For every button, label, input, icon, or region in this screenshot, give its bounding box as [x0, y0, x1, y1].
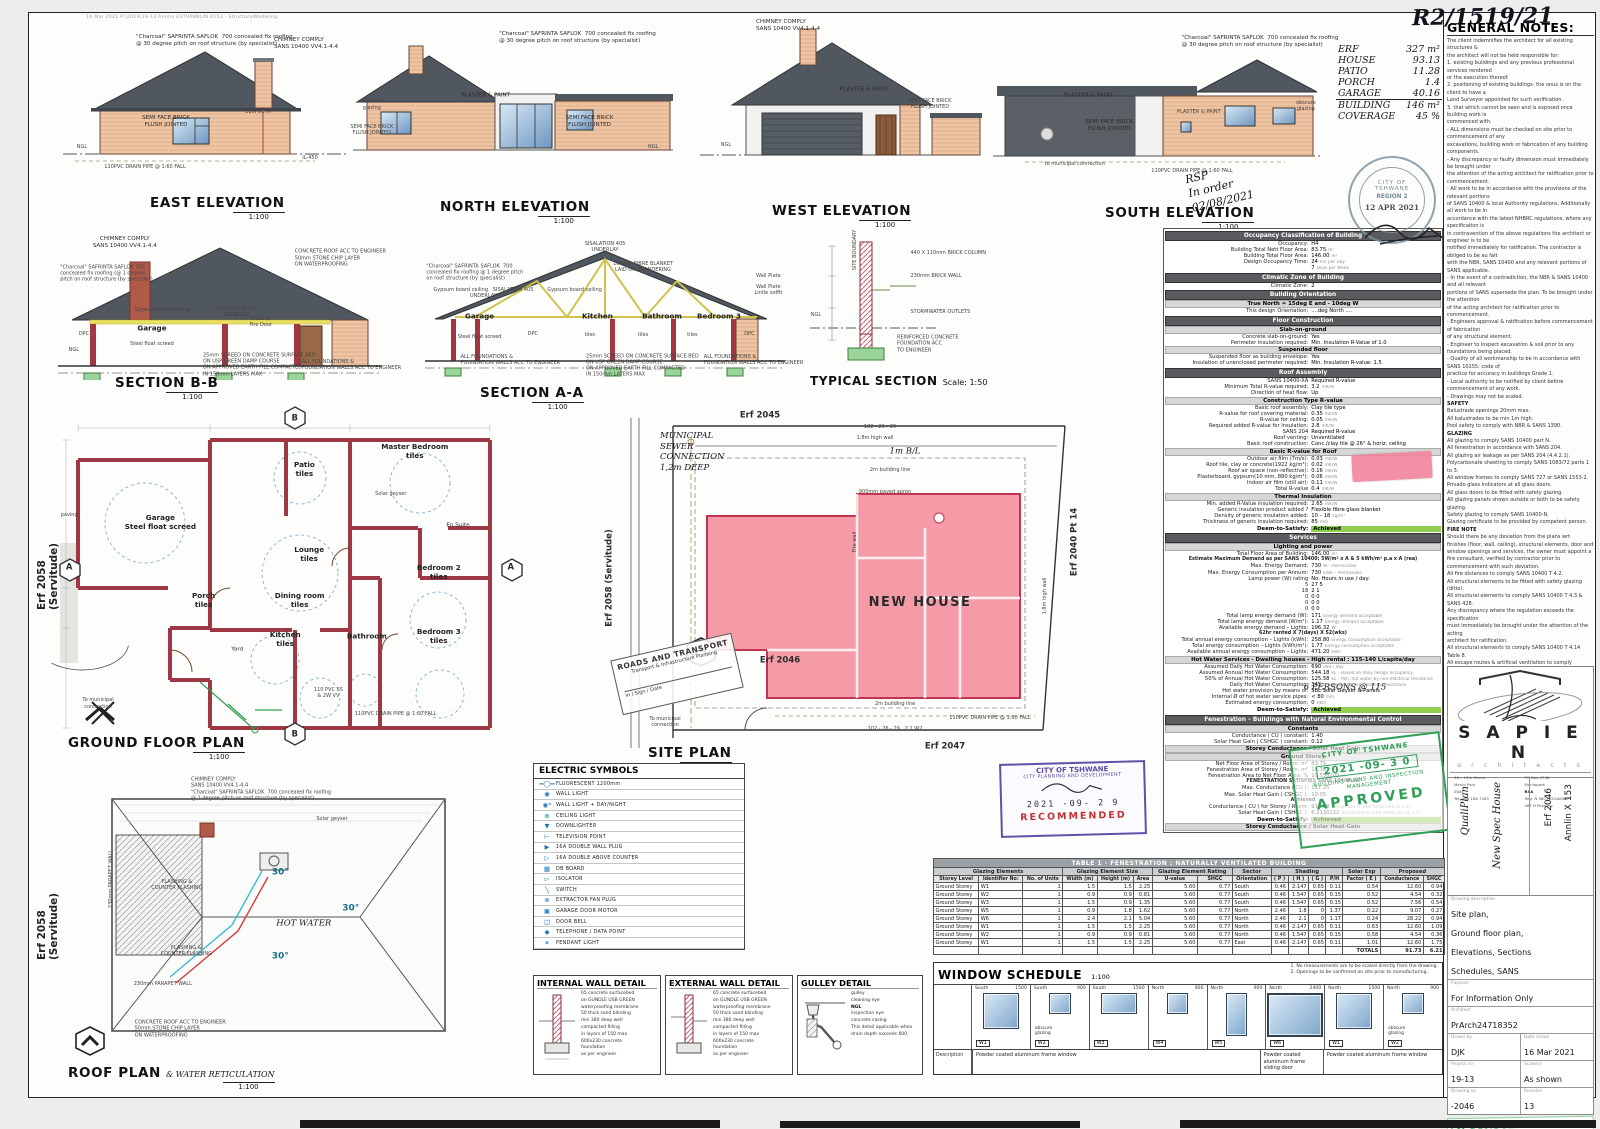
- roof-plan-hand-note: & WATER RETICULATION: [166, 1070, 275, 1079]
- table-cell: Ground Storey: [934, 939, 979, 947]
- column-header: Area: [1134, 876, 1152, 883]
- table-cell: W1: [979, 939, 1023, 947]
- annotation: Patio tiles: [294, 460, 315, 478]
- note-line: cleaning eye: [851, 998, 912, 1005]
- annotation: Wall Plate Lintle soffit: [754, 284, 782, 297]
- table-cell: 0.15: [1326, 931, 1343, 939]
- table-cell: 0.65: [1309, 939, 1326, 947]
- table-cell: [1288, 947, 1309, 955]
- downlighter-icon: ▼: [538, 822, 556, 830]
- annotation: tiles: [638, 332, 648, 338]
- wall-light-daynight-icon: ◉*: [538, 801, 556, 809]
- project-number: 19-13: [1451, 1075, 1474, 1084]
- switch-icon: ╲: [538, 886, 556, 894]
- table-cell: [1097, 947, 1134, 955]
- annotation: SEMI FACE BRICK FLUSH JOINTED: [909, 98, 952, 111]
- field-label: Revision: [1524, 1089, 1590, 1094]
- annotation: Gypsum board ceiling: [135, 307, 190, 313]
- note-line: SAFETY: [1447, 401, 1594, 408]
- table-cell: Ground Storey: [934, 931, 979, 939]
- note-line: commenced with.: [1447, 119, 1594, 126]
- column-header: Conductance: [1380, 876, 1423, 883]
- table-row: Ground StoreyW111.51.52.255.600.77East0.…: [934, 939, 1445, 947]
- table-cell: 1.547: [1288, 891, 1309, 899]
- architect-registration: PrArch24718352: [1451, 1021, 1518, 1030]
- table-cell: 1.4: [1401, 77, 1442, 88]
- note-line: architect for ratification.: [1447, 638, 1594, 645]
- table-cell: 0.11: [1326, 939, 1343, 947]
- table-cell: North: [1232, 923, 1271, 931]
- table-cell: 1.01: [1343, 939, 1380, 947]
- table-cell: 5.60: [1152, 931, 1197, 939]
- table-cell: 91.73: [1380, 947, 1423, 955]
- annotation: 25mm SCREED ON CONCRETE SURFACE BED ON U…: [203, 352, 316, 377]
- table-cell: 2.1: [1288, 915, 1309, 923]
- table-cell: Ground Storey: [934, 923, 979, 931]
- table-cell: 4.54: [1380, 891, 1423, 899]
- isolator-icon: ▻: [538, 875, 556, 883]
- general-notes: GENERAL NOTES: The client indemnifies th…: [1447, 20, 1594, 712]
- db-board-icon: ▦: [538, 865, 556, 873]
- legend-item: ✶PENDANT LIGHT: [534, 938, 744, 949]
- table-row: COVERAGE45 %: [1336, 111, 1442, 122]
- north-elevation-title: NORTH ELEVATION1:100: [440, 196, 590, 225]
- scan-artifact: [780, 1121, 1080, 1128]
- tshwane-round-stamp: CITY OF TSHWANE REGION 2 12 APR 2021: [1348, 156, 1436, 244]
- legend-item: ━◯━FLUORESCENT 1200mm: [534, 779, 744, 790]
- table-cell: 0.9: [1063, 891, 1097, 899]
- annotation: Master Bedroom tiles: [381, 442, 448, 460]
- field-label: Scale(s): [1524, 1062, 1590, 1067]
- table-cell: 0.15: [1326, 891, 1343, 899]
- project-names-block: QualiPlan New Spec House Erf 2046 Annlin…: [1447, 778, 1594, 896]
- table-cell: 0.9: [1063, 931, 1097, 939]
- annotation: 230mm BRICK WALL: [911, 272, 962, 278]
- window-icon: [983, 993, 1019, 1029]
- annotation: MUNICIPAL SEWER CONNECTION 1,2m DEEP: [660, 431, 725, 474]
- gulley-figure: [801, 991, 847, 1065]
- table-cell: 0.65: [1309, 931, 1326, 939]
- annotation: 1.8m high wall: [1042, 578, 1048, 615]
- window-id: W2: [1035, 1040, 1049, 1047]
- note-line: All structural elements to be fitted wit…: [1447, 579, 1594, 586]
- window-description: Powder coated aluminum frame window: [972, 1050, 1260, 1074]
- window-cell: North2400W6: [1265, 985, 1324, 1049]
- note-line: All balustrades to be min 1m high.: [1447, 416, 1594, 423]
- annotation: Yard: [231, 647, 243, 654]
- note-line: commencement with such deviation.: [1447, 564, 1594, 571]
- title-block-fields: Drawing description Site plan, Ground fl…: [1447, 896, 1594, 1115]
- table-cell: 0.46: [1271, 923, 1288, 931]
- detail-title: GULLEY DETAIL: [801, 978, 919, 989]
- table-cell: 0.77: [1197, 939, 1232, 947]
- south-elevation-drawing: "Charcoal" SAFRINTA SAFLOK 700 concealed…: [985, 30, 1330, 198]
- double-plug-icon: ▶: [538, 843, 556, 851]
- annotation: 1.8m high wall: [857, 434, 894, 440]
- electric-symbols-legend: ELECTRIC SYMBOLS ━◯━FLUORESCENT 1200mm◉W…: [533, 763, 745, 950]
- table-cell: 6.21: [1423, 947, 1444, 955]
- annotation: STORMWATER OUTLETS: [911, 309, 971, 315]
- legend-items: ━◯━FLUORESCENT 1200mm◉WALL LIGHT◉*WALL L…: [534, 779, 744, 949]
- table-cell: W2: [979, 931, 1023, 939]
- table-cell: [1326, 947, 1343, 955]
- window-descriptions-row: Description Powder coated aluminum frame…: [934, 1049, 1442, 1074]
- table-cell: 1.8: [1097, 907, 1134, 915]
- annotation: Erf 2045: [740, 411, 780, 422]
- table-cell: 1.5: [1063, 883, 1097, 891]
- table-cell: 2.147: [1288, 883, 1309, 891]
- window-id: W6: [1270, 1040, 1284, 1047]
- table-cell: 0.11: [1326, 883, 1343, 891]
- table-cell: South: [1232, 899, 1271, 907]
- column-group-header: Solar Exp: [1343, 868, 1380, 876]
- note-line: of any structural element.: [1447, 334, 1594, 341]
- note-line: Any discrepancy where the regulation exc…: [1447, 608, 1594, 623]
- note-line: - Engineers approval & ratification befo…: [1447, 319, 1594, 334]
- table-row: PATIO11.28: [1336, 66, 1442, 77]
- date-drawn: 16 Mar 2021: [1524, 1048, 1575, 1057]
- table-cell: 0.65: [1309, 923, 1326, 931]
- annotation: tiles: [585, 332, 595, 338]
- east-elevation-drawing: "Charcoal" SAFRINTA SAFLOK 700 concealed…: [55, 30, 355, 188]
- annotation: NGL: [811, 312, 821, 318]
- annotation: NGL: [721, 142, 731, 148]
- table-cell: ERF: [1336, 44, 1401, 55]
- table-cell: BUILDING: [1336, 100, 1401, 112]
- note-line: fire consultant, verified by contractor …: [1447, 556, 1594, 563]
- detail-notes: gulleycleaning eyeNGLinspection eyeconcr…: [851, 991, 912, 1065]
- wall-light-icon: ◉: [538, 790, 556, 798]
- field-label: Drawn by: [1451, 1035, 1517, 1040]
- note-line: All fire distances to comply SANS 10400 …: [1447, 571, 1594, 578]
- legend-item: ⊢TELEVISION POINT: [534, 832, 744, 843]
- note-line: as per engineer: [581, 1052, 639, 1059]
- table-cell: 1: [1023, 907, 1063, 915]
- note-line: gulley: [851, 991, 912, 998]
- table-cell: 0.65: [1309, 899, 1326, 907]
- note-line: - In the event of a contradiction, the N…: [1447, 275, 1594, 290]
- annotation: 440 X 110mm BRICK COLUMN: [911, 250, 986, 256]
- annotation: 30°: [272, 867, 289, 878]
- annotation: NGL: [648, 144, 658, 150]
- annotation: Bathroom: [642, 312, 682, 321]
- table-cell: 0.9: [1063, 907, 1097, 915]
- glazing-note: obscure glazing: [1388, 1026, 1405, 1036]
- note-line: the attention of the acting architect fo…: [1447, 171, 1594, 186]
- column-header: Storey Level: [934, 876, 979, 883]
- data-point-icon: ◆: [538, 928, 556, 936]
- table-row: TOTALS91.736.21: [934, 947, 1445, 955]
- table-cell: 0.77: [1197, 883, 1232, 891]
- legend-item: ▼DOWNLIGHTER: [534, 821, 744, 832]
- table-cell: [1063, 947, 1097, 955]
- note-line: All glass doors to be fitted with safety…: [1447, 490, 1594, 497]
- sapien-logo-graphic: [1450, 669, 1590, 721]
- table-cell: 1.5: [1063, 923, 1097, 931]
- annotation: A: [508, 563, 515, 574]
- note-line: min 380 deep well: [581, 1018, 639, 1025]
- note-line: (ditto).: [1447, 586, 1594, 593]
- legend-item: ▶16A DOUBLE WALL PLUG: [534, 843, 744, 854]
- annotation: NGL: [69, 346, 79, 352]
- note-line: in layers of 150 max: [581, 1032, 639, 1039]
- column-group-header: Glazing Element Rating: [1152, 868, 1232, 876]
- table-cell: 5.60: [1152, 915, 1197, 923]
- column-header: SHGC: [1423, 876, 1444, 883]
- note-line: Should there be any deviation from the p…: [1447, 534, 1594, 541]
- column-header: No. of Units: [1023, 876, 1063, 883]
- annotation: 30°: [342, 903, 359, 914]
- annotation: 2m building line: [870, 467, 910, 473]
- site-plan-drawing: Erf 2045MUNICIPAL SEWER CONNECTION 1,2m …: [595, 398, 1095, 758]
- handwritten-persons-note: 6 PERSONS @ 115: [1304, 683, 1387, 694]
- table-cell: 0.9: [1097, 899, 1134, 907]
- note-line: compacted filling: [713, 1025, 771, 1032]
- door-bell-icon: ◫: [538, 918, 556, 926]
- annotation: Porch tiles: [192, 591, 215, 609]
- table-cell: 1: [1023, 899, 1063, 907]
- table-cell: Ground Storey: [934, 915, 979, 923]
- table-cell: Ground Storey: [934, 907, 979, 915]
- annotation: Solar geyser: [316, 816, 347, 822]
- table-cell: PORCH: [1336, 77, 1401, 88]
- column-header: ( H ): [1288, 876, 1309, 883]
- table-cell: 1.17: [1326, 915, 1343, 923]
- annotation: CHIMNEY COMPLY SANS 10400 VV4.1-4.4: [93, 236, 157, 250]
- note-line: The client indemnifies the architect for…: [1447, 38, 1594, 53]
- table-cell: 5.60: [1152, 907, 1197, 915]
- column-header: U-value: [1152, 876, 1197, 883]
- note-line: min 380 deep well: [713, 1018, 771, 1025]
- annotation: PLASTER & PAINT: [461, 93, 510, 100]
- annotation: Wall Plate: [756, 272, 781, 278]
- table-cell: 12.60: [1380, 939, 1423, 947]
- field-label: Architect: [1451, 1008, 1590, 1013]
- annotation: PLASTER & PAINT: [1177, 109, 1221, 115]
- table-cell: Ground Storey: [934, 891, 979, 899]
- window-id: W5: [1212, 1040, 1226, 1047]
- east-elevation-title: EAST ELEVATION1:100: [150, 192, 285, 221]
- table-cell: 9.07: [1380, 907, 1423, 915]
- window-schedule-grid: South1500W1South900obscure glazingW2Sout…: [934, 984, 1442, 1049]
- note-line: This detail applicable when: [851, 1025, 912, 1032]
- table-cell: 0.46: [1271, 899, 1288, 907]
- note-line: in layers of 150 max: [713, 1032, 771, 1039]
- note-line: Polycarbonate sheeting to comply SANS 10…: [1447, 460, 1594, 475]
- annotation: Garage: [137, 324, 166, 333]
- table-cell: 0.36: [1423, 931, 1444, 939]
- wall-detail-figure: [669, 991, 709, 1069]
- counter-plug-icon: ▷: [538, 854, 556, 862]
- note-line: Table 8.: [1447, 653, 1594, 660]
- column-group-header: Glazing Element Size: [1063, 868, 1152, 876]
- table-cell: [1309, 947, 1326, 955]
- column-header: Identifier No:: [979, 876, 1023, 883]
- note-line: All structural elements to comply SANS 1…: [1447, 645, 1594, 652]
- annotation: 102 - 26 - 29: [864, 424, 896, 430]
- legend-item: ◉*WALL LIGHT + DAY/NIGHT: [534, 800, 744, 811]
- annotation: 2m building line: [875, 701, 915, 707]
- column-header: Height (m): [1097, 876, 1134, 883]
- table-cell: 2.4: [1063, 915, 1097, 923]
- column-header: Orientation: [1232, 876, 1271, 883]
- note-line: window openings and services, the owner …: [1447, 549, 1594, 556]
- table-cell: 146 m²: [1401, 100, 1442, 112]
- table-cell: 1.5: [1063, 899, 1097, 907]
- note-line: the architect will not be held responsib…: [1447, 53, 1594, 60]
- window-icon: [1267, 993, 1323, 1037]
- table-cell: 5.60: [1152, 883, 1197, 891]
- note-line: Balustrade openings 20mm max.: [1447, 408, 1594, 415]
- annotation: B: [292, 414, 298, 425]
- annotation: B: [292, 730, 298, 741]
- legend-title: ELECTRIC SYMBOLS: [534, 764, 744, 779]
- garage-motor-icon: ▣: [538, 907, 556, 915]
- section-bb-title: SECTION B-B1:100: [115, 372, 218, 401]
- table-cell: 2.25: [1134, 923, 1152, 931]
- table-cell: 1.75: [1423, 939, 1444, 947]
- table-row: BUILDING146 m²: [1336, 100, 1442, 112]
- table-row: GARAGE40.16: [1336, 88, 1442, 100]
- round-stamp-city: CITY OF TSHWANE: [1360, 180, 1424, 192]
- window-cell: North900W4: [1148, 985, 1207, 1049]
- note-line: - Any discrepancy or faulty dimension mu…: [1447, 157, 1594, 172]
- annotation: "Charcoal" SAFRINTA SAFLOK 700 concealed…: [1182, 35, 1339, 49]
- annotation: Fire wall: [852, 532, 858, 552]
- revision-number: 13: [1524, 1102, 1534, 1111]
- field-label: Date drawn: [1524, 1035, 1590, 1040]
- note-line: All glazing panels shown outside or both…: [1447, 497, 1594, 512]
- annotation: Gypsum board ceiling: [547, 287, 602, 293]
- table-cell: 1.5: [1097, 939, 1134, 947]
- table-cell: 0.52: [1343, 891, 1380, 899]
- annotation: NGL: [77, 144, 87, 150]
- annotation: "Charcoal" SAFRINTA SAFLOK 700 concealed…: [60, 264, 153, 283]
- ceiling-light-icon: ⊕: [538, 812, 556, 820]
- detail-notes: 65 concrete surfacebedon GUNDLE USB GREE…: [581, 991, 639, 1069]
- annotation: obscure glazing: [1296, 99, 1316, 112]
- note-line: on GUNDLE USB GREEN: [713, 998, 771, 1005]
- table-cell: 1.37: [1326, 907, 1343, 915]
- table-cell: 0.46: [1271, 931, 1288, 939]
- table-cell: 2.147: [1288, 923, 1309, 931]
- note-line: FIRE NOTE: [1447, 527, 1594, 534]
- window-schedule: WINDOW SCHEDULE 1:100 1. No measurements…: [933, 962, 1443, 1075]
- note-line: Safety glazing to comply SANS 10400-N.: [1447, 512, 1594, 519]
- table-cell: 0.46: [1271, 939, 1288, 947]
- table-cell: 5.60: [1152, 923, 1197, 931]
- field-label: Purpose: [1451, 981, 1590, 986]
- table-cell: W5: [979, 907, 1023, 915]
- table-cell: 0.9: [1097, 931, 1134, 939]
- annotation: Gypsum board ceiling SISALATION 405 UNDE…: [433, 287, 533, 300]
- table-cell: 0.9: [1097, 891, 1134, 899]
- column-group-header: Proposed: [1380, 868, 1444, 876]
- annotation: Garage Steel float screed: [125, 513, 196, 531]
- external-wall-detail: EXTERNAL WALL DETAIL 65 concrete surface…: [665, 975, 793, 1075]
- window-icon: [1167, 993, 1188, 1014]
- handwritten-area-schedule: ERF327 m²HOUSE93.13PATIO11.28PORCH1.4GAR…: [1336, 44, 1442, 122]
- column-group-header: Glazing Elements: [934, 868, 1063, 876]
- column-header: ( P ): [1271, 876, 1288, 883]
- legend-item: ▻ISOLATOR: [534, 874, 744, 885]
- table-cell: 1: [1023, 883, 1063, 891]
- field-label: Drawing description: [1451, 897, 1590, 902]
- annotation: Bedroom 3: [697, 312, 741, 321]
- fenestration-rows: Ground StoreyW111.51.52.255.600.77South0…: [934, 883, 1445, 955]
- annotation: SEMI FACE BRICK FLUSH JOINTED: [142, 115, 190, 129]
- annotation: 110 PVC SS & 2W VV: [314, 686, 343, 699]
- table-row: Ground StoreyW111.51.52.255.600.77North0…: [934, 923, 1445, 931]
- annotation: "Charcoal" SAFRINTA SAFLOK 700 concealed…: [136, 34, 293, 48]
- annotation: Steel float screed: [458, 333, 502, 339]
- drawing-number: -2046: [1451, 1102, 1474, 1111]
- annotation: 110PVC DRAIN PIPE @ 1:60 FALL: [949, 715, 1030, 721]
- note-line: 3. that which cannot be seen and is expo…: [1447, 105, 1594, 120]
- roof-plan-drawing: CHIMNEY COMPLY SANS 10400 VV4.1-4.4 "Cha…: [50, 765, 520, 1065]
- annotation: Erf 2040 Pt 14: [1070, 508, 1081, 576]
- window-cell: North900obscure glazingW2: [1383, 985, 1442, 1049]
- table-cell: 0.77: [1197, 907, 1232, 915]
- table-row: Ground StoreyW210.90.90.815.600.77South0…: [934, 891, 1445, 899]
- table-cell: 1.5: [1097, 923, 1134, 931]
- legend-item: ◫DOOR BELL: [534, 917, 744, 928]
- scan-artifact: [300, 1120, 720, 1128]
- table-cell: [1271, 947, 1288, 955]
- table-row: ERF327 m²: [1336, 44, 1442, 55]
- table-cell: 1.8: [1288, 907, 1309, 915]
- table-row: Ground StoreyW111.51.52.255.600.77South0…: [934, 883, 1445, 891]
- township-name: Annlin X 153: [1564, 784, 1574, 841]
- extractor-fan-icon: ⊗: [538, 896, 556, 904]
- annotation: PLASTER & PAINT: [1064, 92, 1113, 99]
- annotation: tiles: [687, 332, 697, 338]
- fenestration-table: TABLE 1 - FENESTRATION : NATURALLY VENTI…: [933, 858, 1445, 955]
- note-line: with the NBR, SANS 10400 and any relevan…: [1447, 260, 1594, 275]
- detail-notes: 65 concrete surfacebedon GUNDLE USB GREE…: [713, 991, 771, 1069]
- description-label: Description: [934, 1050, 972, 1074]
- table-cell: 5.60: [1152, 939, 1197, 947]
- legend-item: ▦DB BOARD: [534, 864, 744, 875]
- window-icon: [1402, 993, 1423, 1014]
- table-cell: 1.62: [1134, 907, 1152, 915]
- annotation: ALL FOUNDATIONS & FOUNDATION WALLS ACC T…: [704, 353, 804, 366]
- legend-item: ╲SWITCH: [534, 885, 744, 896]
- annotation: 230mm PARAPET WALL: [134, 981, 192, 987]
- window-cell: South1500W1: [972, 985, 1030, 1049]
- note-line: 65 concrete surfacebed: [581, 991, 639, 998]
- annotation: Solar geyser: [375, 491, 406, 497]
- table-cell: 1: [1023, 915, 1063, 923]
- drawn-by: DJK: [1451, 1048, 1465, 1057]
- purple-stamp-signature: [1038, 779, 1108, 795]
- table-cell: 2.1: [1097, 915, 1134, 923]
- annotation: 25mm SCREED ON CONCRETE SURFACE BED ON U…: [586, 353, 699, 378]
- table-cell: [934, 947, 979, 955]
- table-cell: 0.77: [1197, 915, 1232, 923]
- annotation: DPC: [528, 330, 538, 336]
- annotation: Garage: [465, 312, 494, 321]
- annotation: 110PVC DRAIN PIPE @ 1:60 FALL: [104, 164, 185, 170]
- table-cell: 0.77: [1197, 899, 1232, 907]
- note-line: All fenestration in accordance with SANS…: [1447, 445, 1594, 452]
- legend-item: ⊗EXTRACTOR FAN PLUG: [534, 896, 744, 907]
- gulley-detail: GULLEY DETAIL gulleycleaning eyeNGLinspe…: [797, 975, 923, 1075]
- architect-logo-block: S A P I E N a r c h i t e c t s 40 – 15t…: [1447, 666, 1594, 778]
- note-line: as per engineer: [713, 1052, 771, 1059]
- table-cell: [1134, 947, 1152, 955]
- note-line: of the acting architect for ratification…: [1447, 305, 1594, 320]
